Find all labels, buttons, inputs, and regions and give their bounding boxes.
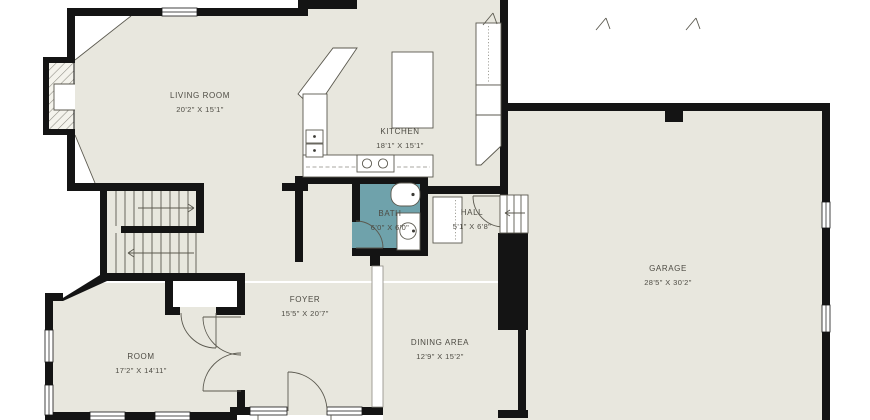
foyer-dining-divider xyxy=(372,266,383,407)
refrigerator-cabinets xyxy=(476,23,501,165)
room-name: ROOM xyxy=(127,352,154,361)
room-dims: 12'9" X 15'2" xyxy=(416,352,464,361)
room-name: DINING AREA xyxy=(411,338,469,347)
window xyxy=(162,8,197,16)
bathtub xyxy=(391,183,420,206)
garage-window xyxy=(822,305,830,332)
room-name: LIVING ROOM xyxy=(170,91,230,100)
window xyxy=(90,412,125,420)
garage-entry-steps xyxy=(500,195,528,233)
firebox xyxy=(54,84,75,110)
kitchen-island xyxy=(392,52,433,128)
garage-window xyxy=(822,202,830,228)
sidelight-window xyxy=(250,407,287,415)
room-dims: 20'2" X 15'1" xyxy=(176,105,224,114)
cutoff-ticks xyxy=(483,13,700,30)
room-dims: 5'1" X 6'8" xyxy=(453,222,491,231)
floor-plan: LIVING ROOM 20'2" X 15'1" KITCHEN 18'1" … xyxy=(0,0,870,420)
room-name: KITCHEN xyxy=(380,127,419,136)
window xyxy=(45,330,53,362)
window xyxy=(45,385,53,415)
room-dims: 18'1" X 15'1" xyxy=(376,141,424,150)
room-dims: 28'5" X 30'2" xyxy=(644,278,692,287)
kitchen-sink xyxy=(357,155,394,172)
room-name: FOYER xyxy=(290,295,321,304)
room-dims: 17'2" X 14'11" xyxy=(115,366,167,375)
window xyxy=(155,412,190,420)
hall-closet xyxy=(433,197,462,243)
floor-plan-page: LIVING ROOM 20'2" X 15'1" KITCHEN 18'1" … xyxy=(0,0,870,420)
room-name: BATH xyxy=(378,209,401,218)
room-dims: 6'0" X 6'0" xyxy=(371,223,409,232)
sidelight-window xyxy=(327,407,362,415)
living-kitchen-floor xyxy=(73,0,500,186)
below-foyer-white xyxy=(230,415,383,420)
fireplace xyxy=(43,57,75,135)
room-name: HALL xyxy=(461,208,483,217)
room-name: GARAGE xyxy=(649,264,687,273)
room-dims: 15'5" X 20'7" xyxy=(281,309,329,318)
